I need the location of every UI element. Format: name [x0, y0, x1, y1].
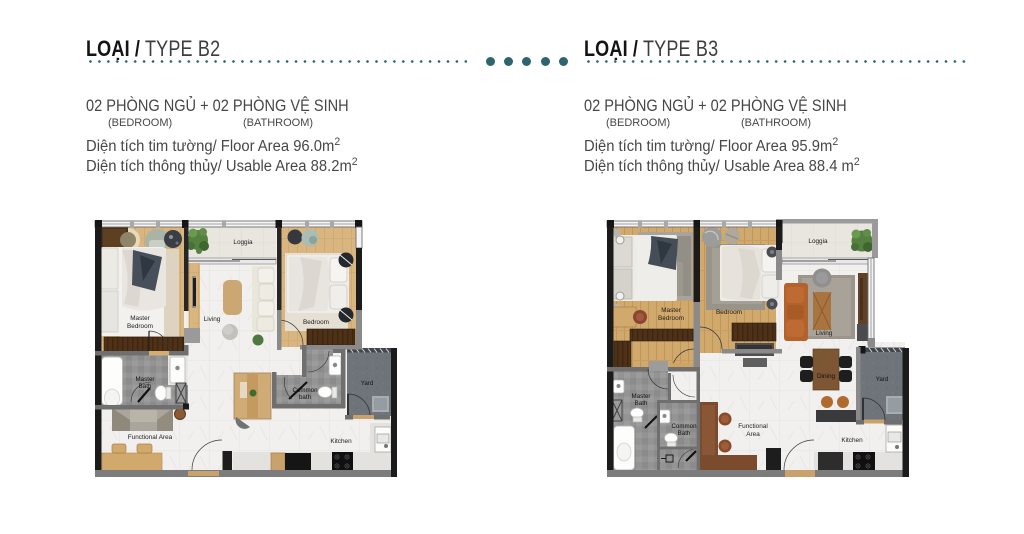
svg-text:Area: Area: [746, 431, 760, 438]
svg-text:Bedroom: Bedroom: [127, 323, 153, 330]
svg-text:Kitchen: Kitchen: [841, 437, 863, 444]
svg-text:Bedroom: Bedroom: [303, 319, 329, 326]
svg-text:Bedroom: Bedroom: [716, 309, 742, 316]
svg-text:Functional: Functional: [738, 423, 768, 430]
svg-text:Loggia: Loggia: [808, 238, 828, 245]
svg-text:Yard: Yard: [361, 380, 374, 387]
svg-text:Master: Master: [661, 307, 681, 314]
svg-text:Living: Living: [204, 316, 221, 323]
svg-text:Bath: Bath: [635, 400, 648, 407]
svg-text:Bath: Bath: [139, 383, 152, 390]
svg-text:Master: Master: [130, 315, 150, 322]
svg-text:Loggia: Loggia: [233, 239, 253, 246]
svg-text:Living: Living: [816, 330, 833, 337]
svg-text:Master: Master: [632, 393, 651, 400]
svg-text:Dining: Dining: [817, 373, 836, 380]
svg-text:Functional Area: Functional Area: [128, 434, 173, 441]
svg-text:Bedroom: Bedroom: [658, 315, 684, 322]
svg-text:bath: bath: [299, 394, 312, 401]
svg-text:Common: Common: [292, 387, 318, 394]
svg-text:Yard: Yard: [876, 376, 889, 383]
svg-text:Master: Master: [136, 376, 155, 383]
svg-text:Bath: Bath: [678, 430, 691, 437]
svg-text:Common: Common: [671, 423, 697, 430]
svg-text:Kitchen: Kitchen: [330, 438, 352, 445]
